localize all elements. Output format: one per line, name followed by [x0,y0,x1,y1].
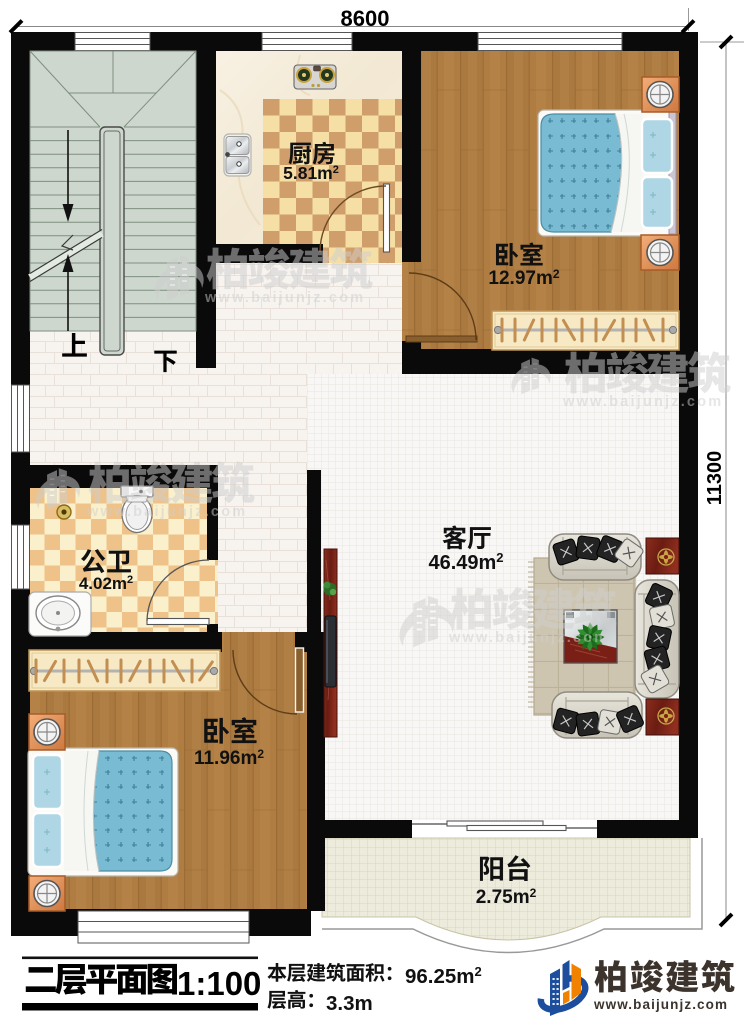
svg-text:www.baijunjz.com: www.baijunjz.com [562,394,723,410]
svg-text:5.81m2: 5.81m2 [283,163,339,183]
svg-text:12.97m2: 12.97m2 [488,267,559,289]
svg-text:www.baijunjz.com: www.baijunjz.com [448,630,609,646]
svg-text:www.baijunjz.com: www.baijunjz.com [204,290,365,306]
svg-text:1:100: 1:100 [177,965,261,1002]
svg-text:4.02m2: 4.02m2 [79,574,133,593]
svg-text:96.25m2: 96.25m2 [405,964,482,988]
svg-text:www.baijunjz.com: www.baijunjz.com [593,997,728,1012]
svg-text:www.baijunjz.com: www.baijunjz.com [86,504,247,520]
svg-text:3.3m: 3.3m [326,992,373,1015]
svg-text:11.96m2: 11.96m2 [194,747,264,769]
svg-text:46.49m2: 46.49m2 [428,550,503,574]
svg-text:11300: 11300 [704,451,726,506]
svg-text:2.75m2: 2.75m2 [476,886,537,908]
svg-text:8600: 8600 [341,6,390,31]
